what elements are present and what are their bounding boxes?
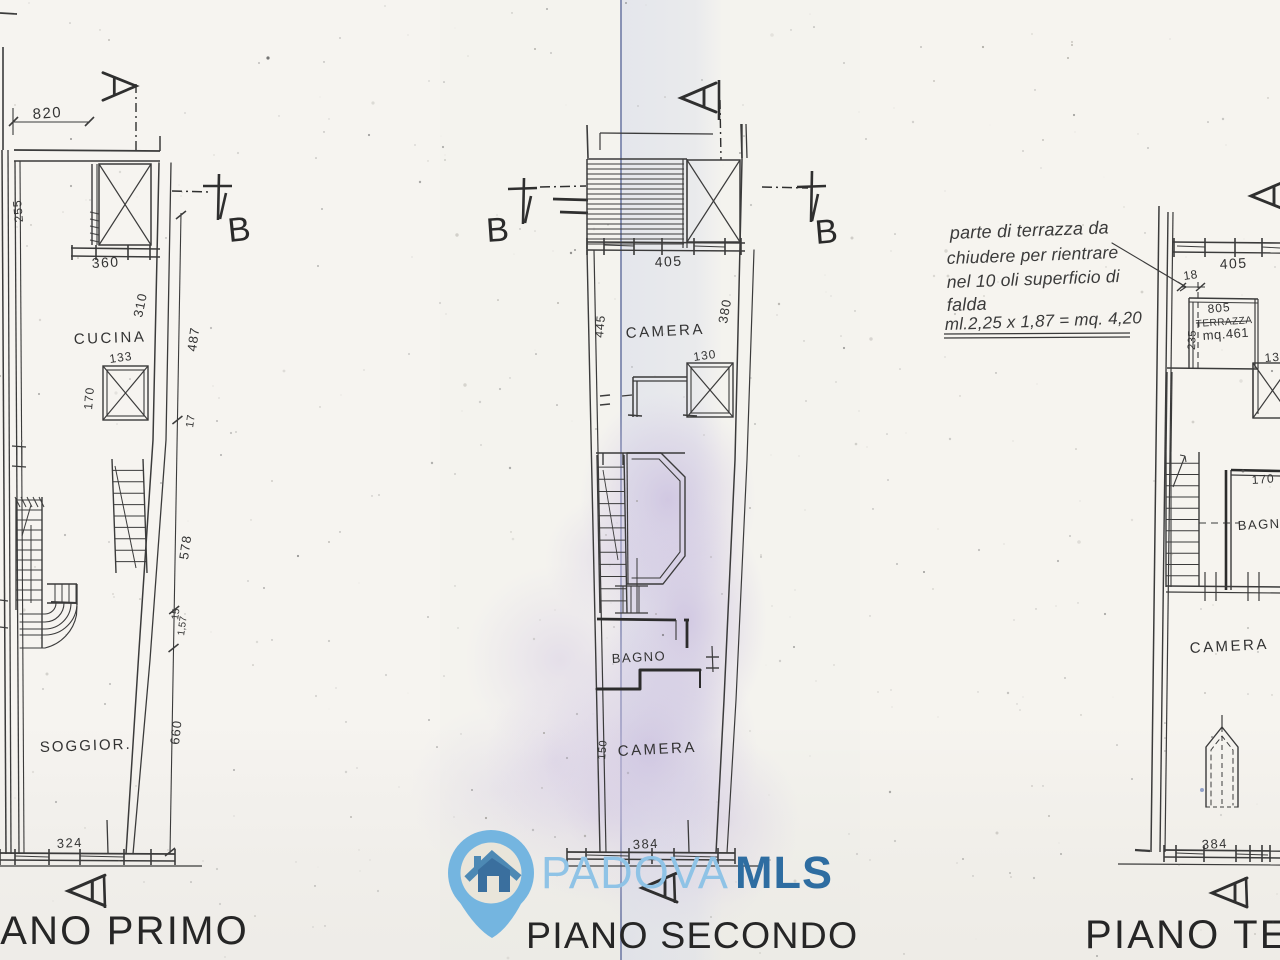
svg-text:805: 805 xyxy=(1207,300,1231,316)
svg-text:405: 405 xyxy=(1219,255,1248,272)
svg-text:660: 660 xyxy=(167,719,185,745)
svg-text:384: 384 xyxy=(1201,836,1228,852)
svg-text:CUCINA: CUCINA xyxy=(74,328,147,348)
svg-text:17: 17 xyxy=(184,414,198,429)
svg-text:SOGGIOR.: SOGGIOR. xyxy=(40,736,132,756)
svg-text:445: 445 xyxy=(592,314,608,338)
svg-text:324: 324 xyxy=(56,835,83,851)
svg-text:360: 360 xyxy=(91,254,120,271)
svg-text:BAGNO: BAGNO xyxy=(1237,515,1280,533)
svg-text:13: 13 xyxy=(1264,350,1280,365)
svg-text:820: 820 xyxy=(32,104,63,123)
svg-text:255: 255 xyxy=(10,199,26,223)
svg-text:PIANO PRIMO: PIANO PRIMO xyxy=(0,909,249,953)
svg-text:B: B xyxy=(813,212,839,252)
svg-text:235: 235 xyxy=(1186,330,1199,350)
svg-text:PIANO SECONDO: PIANO SECONDO xyxy=(526,914,858,956)
svg-text:PIANO TERZO: PIANO TERZO xyxy=(1085,913,1280,957)
svg-text:B: B xyxy=(226,210,253,250)
svg-text:BAGNO: BAGNO xyxy=(611,648,666,666)
svg-text:150: 150 xyxy=(596,739,610,760)
svg-text:170: 170 xyxy=(1251,471,1275,487)
svg-text:falda: falda xyxy=(946,294,987,315)
svg-text:18: 18 xyxy=(1182,267,1198,283)
svg-text:405: 405 xyxy=(654,253,683,270)
svg-text:170: 170 xyxy=(81,386,97,410)
svg-text:B: B xyxy=(485,210,510,249)
svg-text:MLS: MLS xyxy=(735,847,833,898)
svg-text:PADOVA: PADOVA xyxy=(541,847,729,898)
